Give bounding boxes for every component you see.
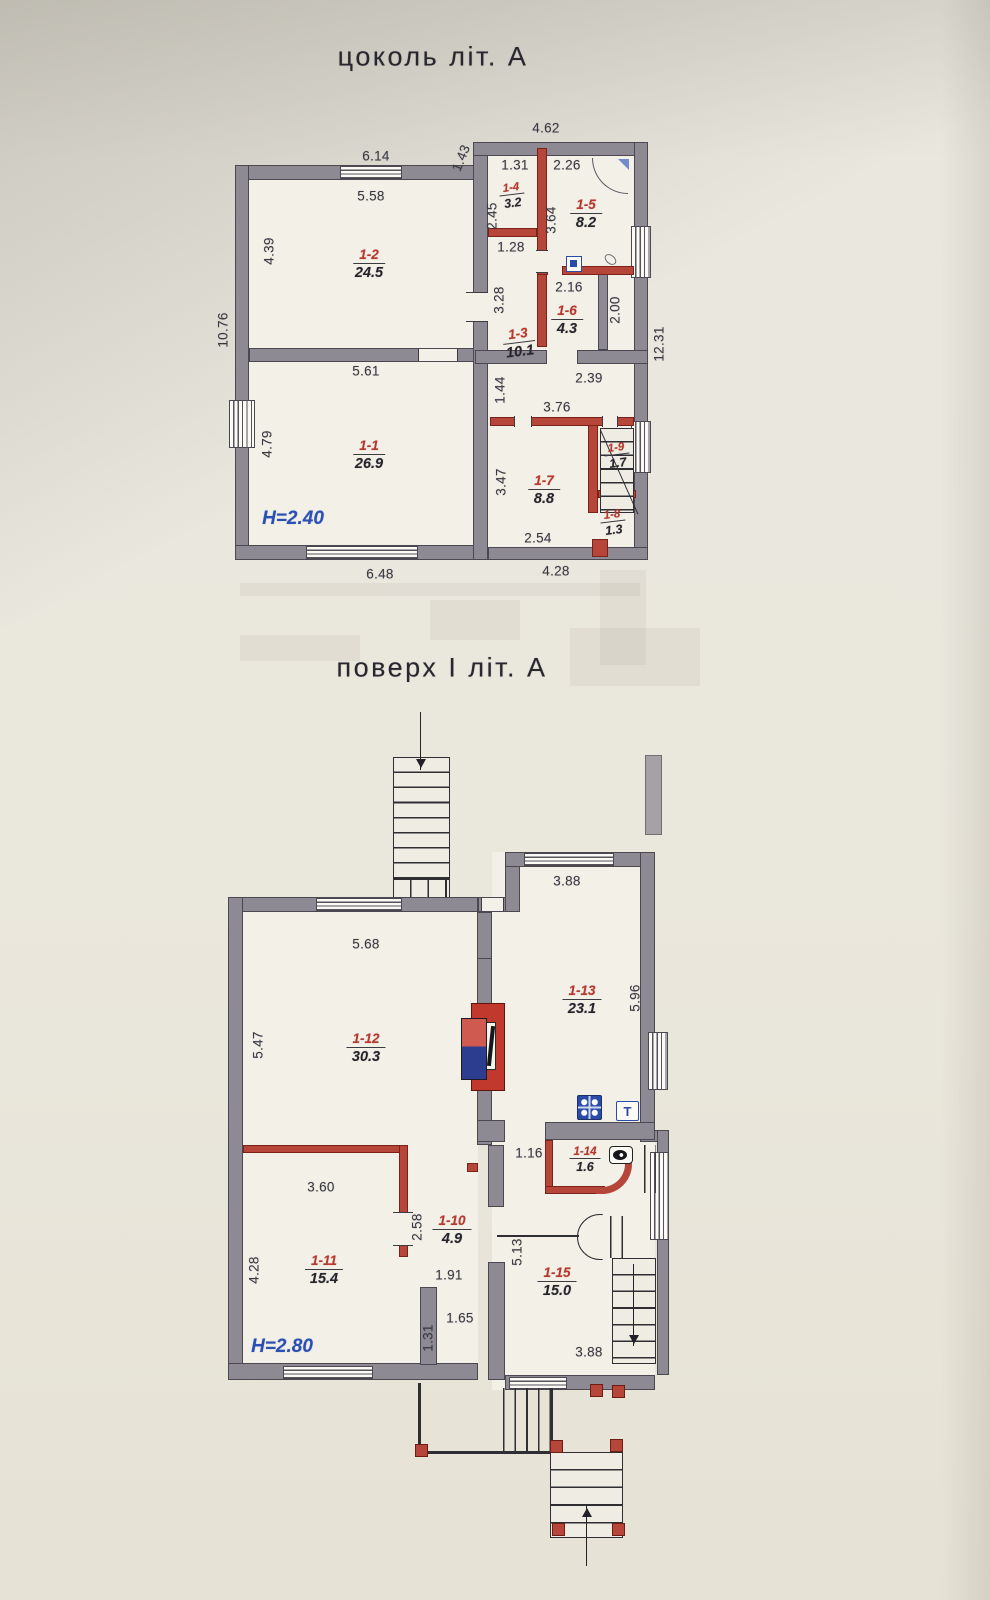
dim-label: 2.39 — [575, 371, 602, 386]
porch-edge — [418, 1383, 421, 1453]
wall — [598, 272, 608, 350]
wall — [473, 142, 648, 156]
room-label-1-7: 1-7 8.8 — [528, 473, 560, 507]
porch-arrow-up — [586, 1506, 587, 1566]
porch-post — [612, 1523, 625, 1536]
bleed-mark — [240, 635, 360, 661]
porch-post — [550, 1440, 563, 1453]
gas-stove-icon — [577, 1095, 602, 1120]
room-label-1-5: 1-5 8.2 — [570, 197, 602, 231]
dim-label: 6.14 — [362, 149, 389, 164]
exterior-staircase-top — [393, 757, 450, 879]
porch-post — [590, 1384, 603, 1397]
window — [631, 226, 651, 278]
window — [283, 1366, 373, 1379]
dim-label: 4.39 — [262, 237, 277, 264]
wall — [488, 547, 648, 560]
window — [340, 166, 402, 179]
porch-post — [612, 1385, 625, 1398]
dim-label: 5.96 — [628, 984, 643, 1011]
door-opening — [481, 898, 504, 911]
dim-label: 5.58 — [357, 189, 384, 204]
red-wall — [243, 1145, 404, 1153]
wall — [477, 1120, 505, 1142]
toilet-icon — [609, 1146, 633, 1164]
dim-label: 2.45 — [485, 202, 500, 229]
dim-label: 2.16 — [555, 280, 582, 295]
door-opening — [602, 416, 618, 427]
dim-label: 1.44 — [493, 376, 508, 403]
fireplace-firebox — [461, 1018, 487, 1080]
room-label-1-2: 1-2 24.5 — [353, 247, 385, 281]
dim-label: 5.61 — [352, 364, 379, 379]
dim-label: 4.79 — [260, 430, 275, 457]
room-label-1-1: 1-1 26.9 — [353, 438, 385, 472]
dim-label: 1.31 — [501, 158, 528, 173]
floor1-title: поверх І літ. А — [336, 653, 547, 684]
window — [316, 898, 402, 911]
room-label-1-6: 1-6 4.3 — [551, 303, 583, 337]
room-label-1-14: 1-14 1.6 — [569, 1146, 600, 1174]
window — [631, 421, 651, 473]
window — [229, 400, 255, 448]
stair-arrow-down — [633, 1264, 634, 1346]
dim-label: 3.47 — [494, 468, 509, 495]
bleed-mark — [430, 600, 520, 640]
room-label-1-10: 1-10 4.9 — [432, 1213, 471, 1247]
porch-post — [552, 1523, 565, 1536]
dim-label: 1.65 — [446, 1311, 473, 1326]
side-steps — [493, 1388, 551, 1452]
room-label-1-11: 1-11 15.4 — [305, 1253, 343, 1287]
wall — [577, 350, 648, 364]
dim-label: 3.60 — [307, 1180, 334, 1195]
dim-label: 2.26 — [553, 158, 580, 173]
room-label-1-9: 1-9 1.7 — [603, 441, 631, 472]
basement-title: цоколь літ. А — [338, 42, 529, 73]
porch-post — [610, 1439, 623, 1452]
room-label-1-15: 1-15 15.0 — [537, 1265, 576, 1299]
room-floor — [228, 897, 478, 1380]
sink-icon: Т — [616, 1101, 639, 1121]
dim-label: 1.28 — [497, 240, 524, 255]
winder-steps — [600, 1216, 624, 1258]
wall — [488, 1262, 505, 1380]
bleed-mark — [240, 583, 640, 596]
dim-label: 5.68 — [352, 937, 379, 952]
wall — [235, 165, 249, 560]
dim-label: 3.76 — [543, 400, 570, 415]
room-label-1-3: 1-3 10.1 — [501, 324, 536, 362]
room-label-1-8: 1-8 1.3 — [599, 508, 627, 539]
room-label-1-13: 1-13 23.1 — [562, 983, 601, 1017]
dim-label: 3.64 — [544, 206, 559, 233]
dim-label: 3.28 — [492, 286, 507, 313]
dim-label: 3.88 — [575, 1345, 602, 1360]
dim-label: 1.31 — [421, 1324, 436, 1351]
dim-label: 3.88 — [553, 874, 580, 889]
arch-diameter-line — [497, 1235, 579, 1237]
dim-label: 12.31 — [652, 326, 667, 361]
door-opening — [536, 250, 548, 273]
door-opening — [514, 416, 532, 427]
window — [648, 1032, 668, 1090]
red-wall — [537, 273, 547, 347]
wall — [645, 755, 662, 835]
room-floor — [235, 165, 475, 560]
dim-label: 5.13 — [510, 1238, 525, 1265]
dim-label: 5.47 — [251, 1031, 266, 1058]
dim-label: 1.16 — [515, 1146, 542, 1161]
dim-label: 2.54 — [524, 531, 551, 546]
room-label-1-12: 1-12 30.3 — [346, 1031, 385, 1065]
red-wall — [467, 1163, 478, 1172]
red-wall — [592, 539, 608, 557]
entry-arrow-down — [420, 712, 421, 770]
dim-label: 10.76 — [216, 312, 231, 347]
dim-label: 2.00 — [608, 296, 623, 323]
bleed-mark — [570, 628, 700, 686]
window — [524, 853, 614, 866]
ceiling-height-label: H=2.80 — [251, 1336, 313, 1358]
porch-post — [415, 1444, 428, 1457]
wall — [477, 958, 492, 1008]
door-opening — [418, 349, 458, 361]
wall — [228, 897, 243, 1380]
dim-label: 4.62 — [532, 121, 559, 136]
ceiling-height-label: H=2.40 — [262, 508, 324, 530]
red-wall — [588, 425, 598, 513]
door-opening — [466, 292, 488, 322]
room-label-1-4: 1-4 3.2 — [498, 181, 526, 212]
dim-label: 6.48 — [366, 567, 393, 582]
scanned-floor-plan-page: цоколь літ. А поверх І літ. А — [0, 0, 990, 1600]
dim-label: 4.28 — [247, 1256, 262, 1283]
wall — [545, 1122, 655, 1140]
dim-label: 1.91 — [435, 1268, 462, 1283]
dim-label: 2.58 — [410, 1213, 425, 1240]
window — [306, 546, 418, 559]
dim-label: 4.28 — [542, 564, 569, 579]
red-wall — [537, 148, 547, 252]
wall — [488, 1145, 504, 1207]
electric-panel-icon — [566, 256, 582, 272]
winder-steps — [634, 1145, 656, 1193]
